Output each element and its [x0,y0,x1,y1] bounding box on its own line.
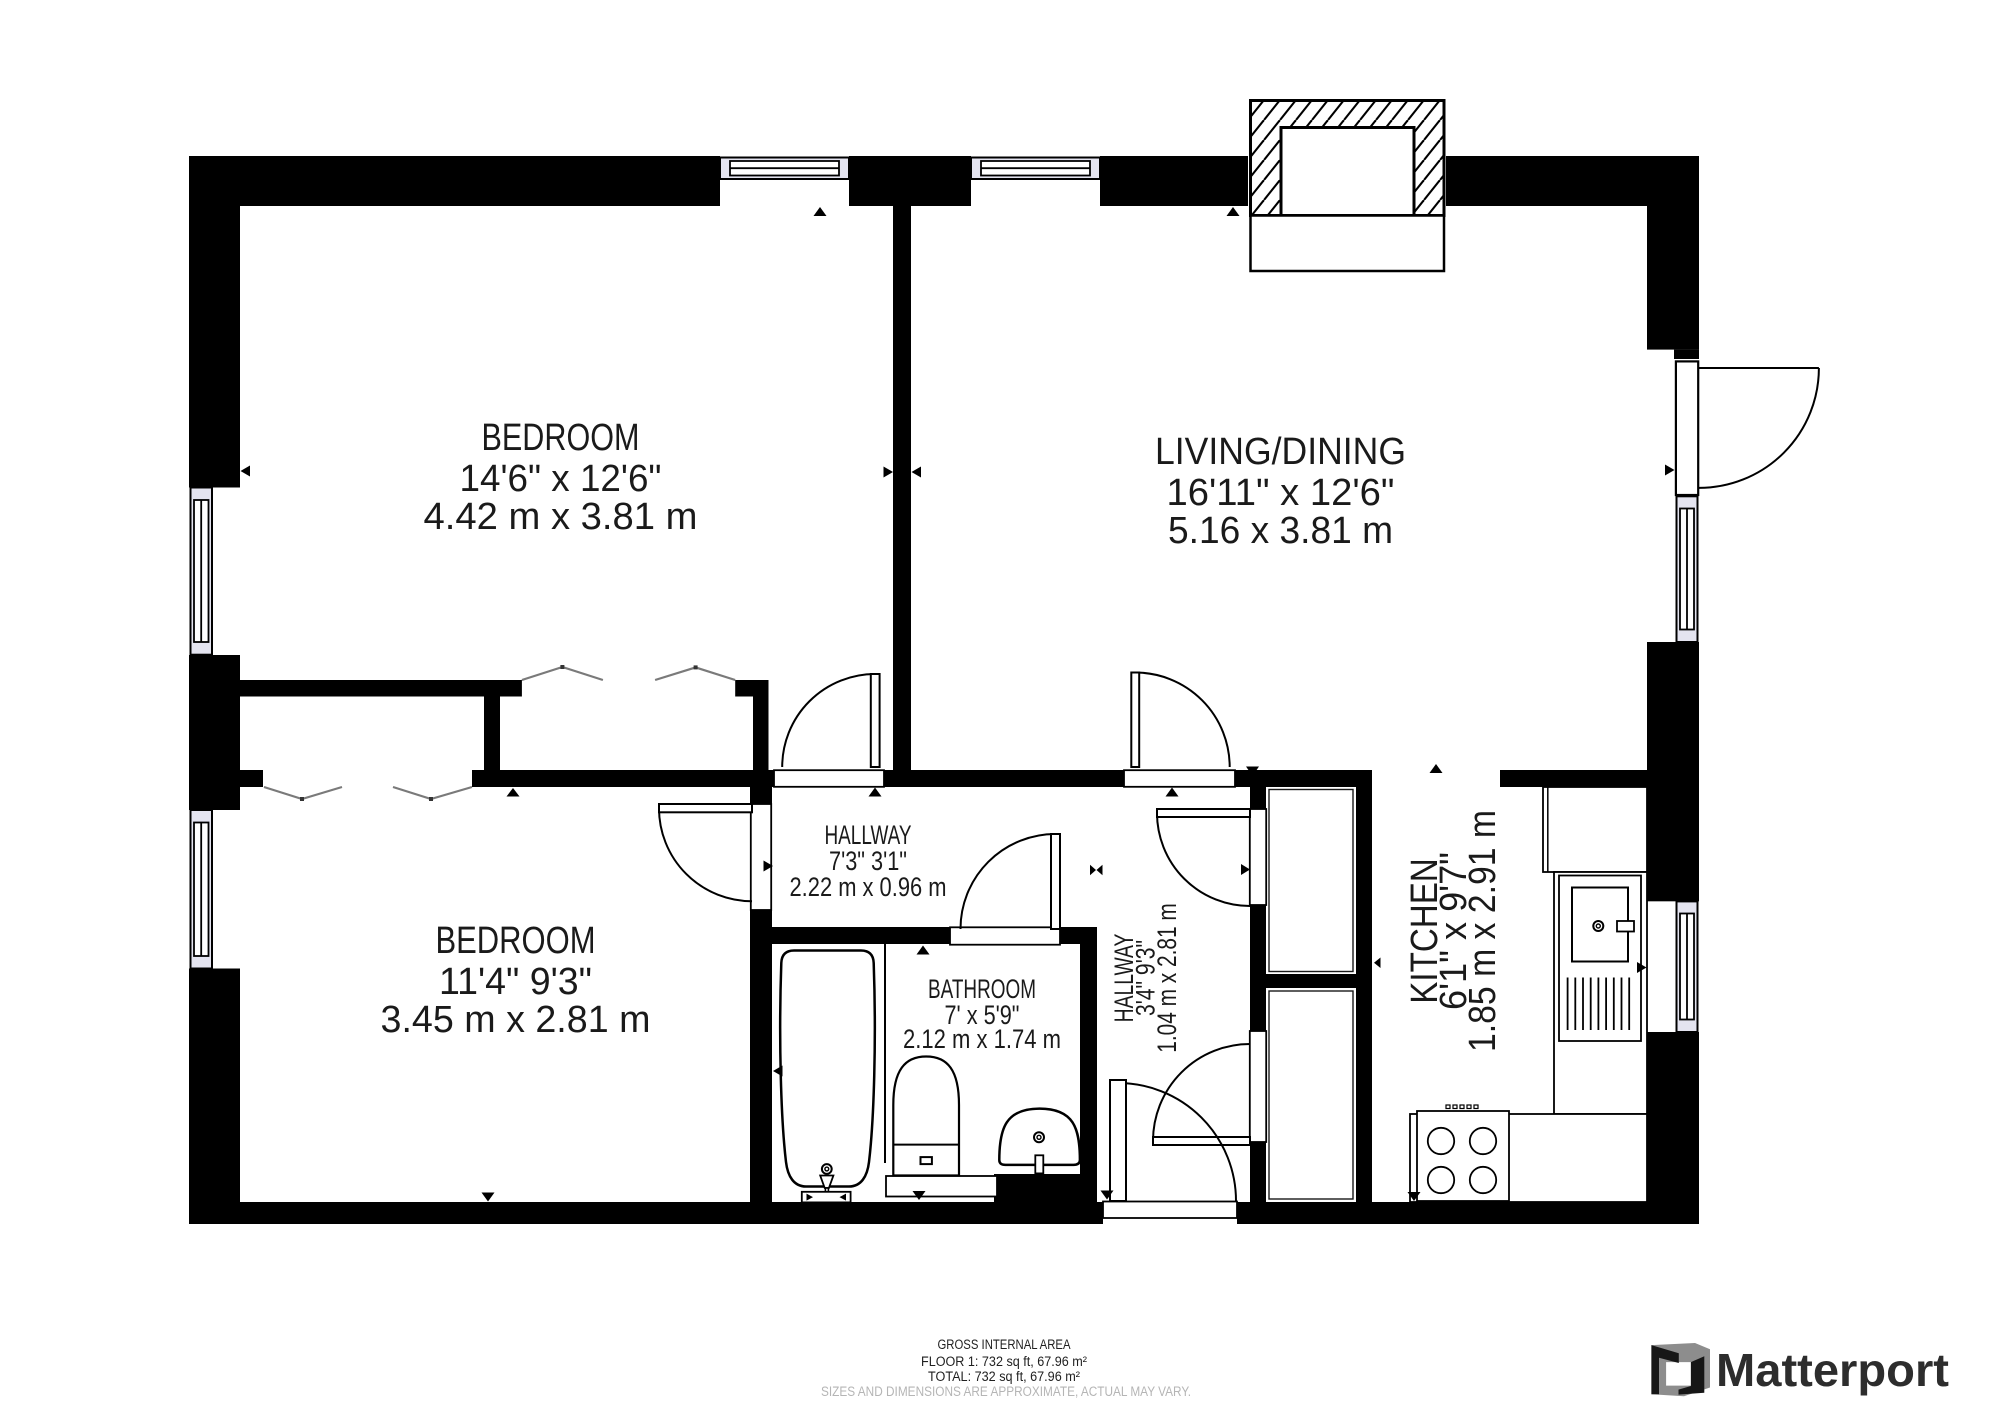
svg-text:2.22 m x 0.96 m: 2.22 m x 0.96 m [790,872,947,902]
svg-text:1.85 m x 2.91 m: 1.85 m x 2.91 m [1462,810,1504,1052]
svg-text:4.42 m x 3.81 m: 4.42 m x 3.81 m [424,496,698,538]
svg-text:2.12 m x 1.74 m: 2.12 m x 1.74 m [903,1024,1061,1054]
svg-text:1.04 m x 2.81 m: 1.04 m x 2.81 m [1152,903,1182,1053]
svg-text:14'6" x 12'6": 14'6" x 12'6" [460,458,662,500]
svg-text:LIVING/DINING: LIVING/DINING [1155,431,1406,473]
svg-text:Matterport: Matterport [1716,1344,1949,1396]
svg-text:BEDROOM: BEDROOM [436,920,596,962]
svg-text:FLOOR 1: 732 sq ft, 67.96 m²: FLOOR 1: 732 sq ft, 67.96 m² [921,1354,1087,1369]
svg-text:3.45 m x 2.81 m: 3.45 m x 2.81 m [381,999,651,1041]
svg-text:11'4" 9'3": 11'4" 9'3" [439,961,592,1003]
svg-text:BEDROOM: BEDROOM [482,417,640,459]
svg-text:5.16 x 3.81 m: 5.16 x 3.81 m [1168,510,1393,552]
svg-text:TOTAL: 732 sq ft, 67.96 m²: TOTAL: 732 sq ft, 67.96 m² [928,1369,1080,1384]
svg-text:SIZES AND DIMENSIONS ARE APPRO: SIZES AND DIMENSIONS ARE APPROXIMATE, AC… [821,1384,1191,1399]
svg-text:16'11" x 12'6": 16'11" x 12'6" [1167,472,1395,514]
svg-text:GROSS INTERNAL AREA: GROSS INTERNAL AREA [938,1337,1071,1352]
